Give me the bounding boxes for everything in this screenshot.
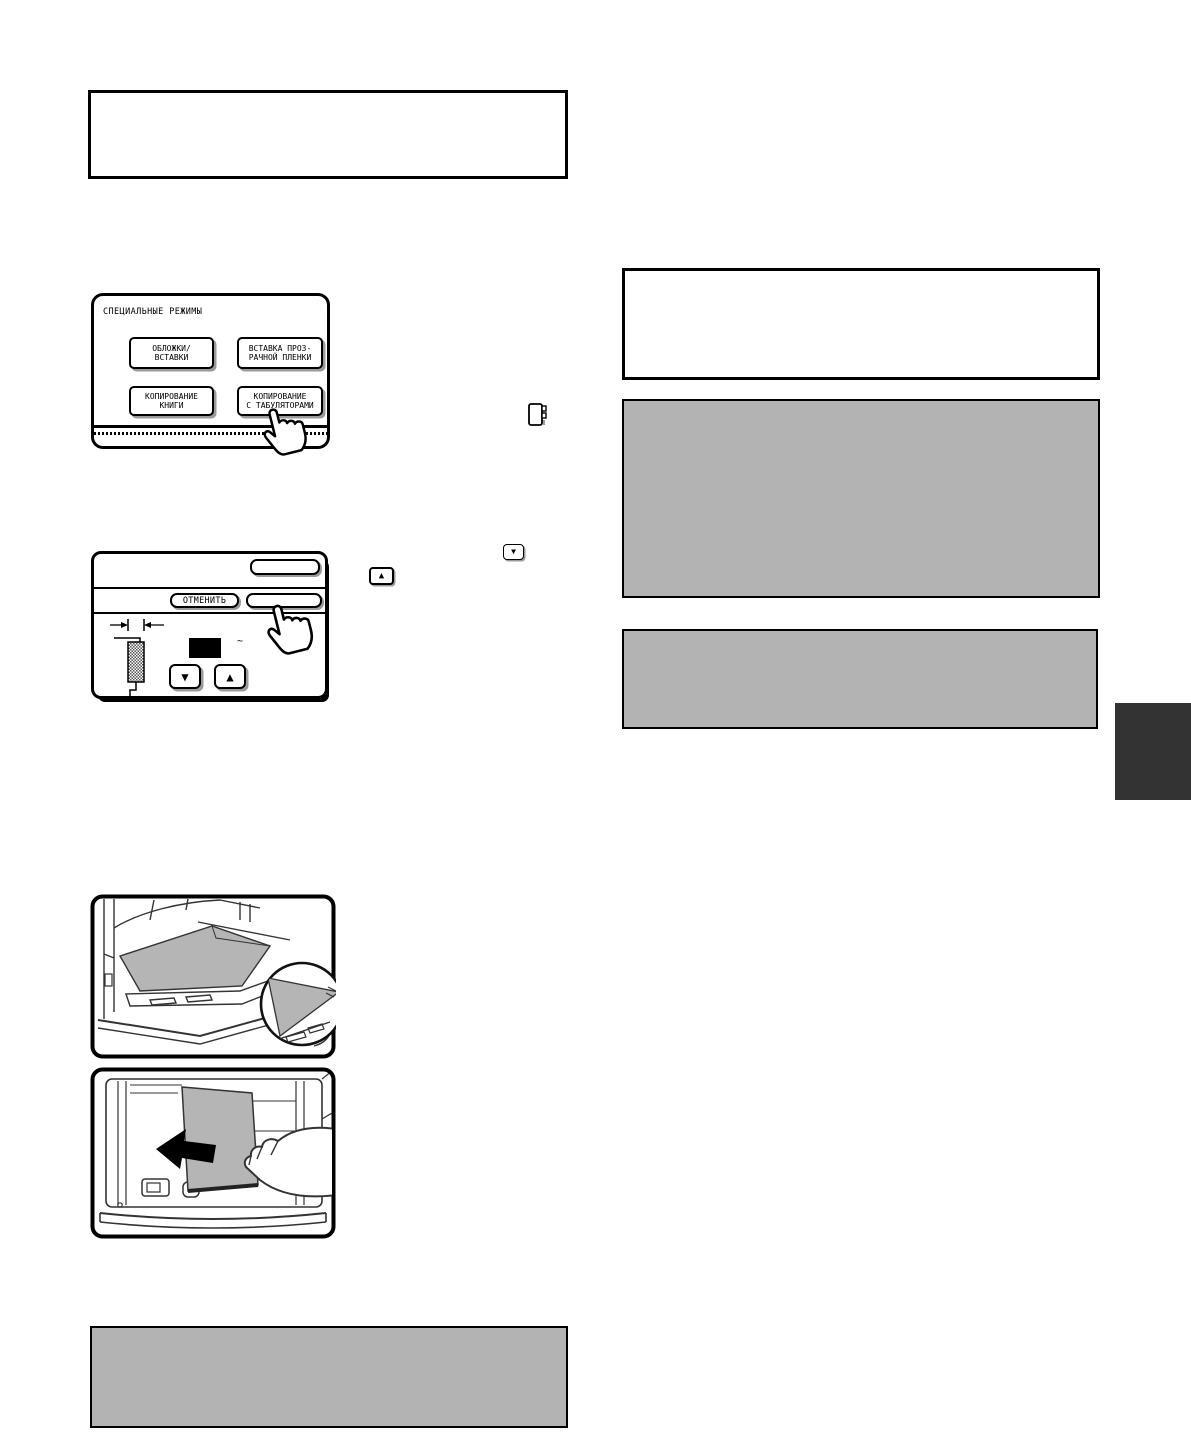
callout-box-top-left	[88, 90, 568, 179]
inline-down-key-icon: ▼	[503, 544, 524, 560]
callout-box-right	[622, 268, 1100, 380]
tab-width-screen: ОТМЕНИТЬ	[91, 551, 328, 699]
tab-sheet-icon	[527, 400, 549, 430]
note-box-1	[622, 399, 1100, 598]
panel-divider-line	[94, 425, 327, 428]
tab-width-diagram	[106, 616, 168, 700]
special-modes-title: СПЕЦИАЛЬНЫЕ РЕЖИМЫ	[103, 307, 202, 317]
note-box-2	[622, 629, 1098, 729]
cancel-button[interactable]: ОТМЕНИТЬ	[170, 593, 239, 608]
tilde-mark: ~	[237, 636, 243, 647]
down-triangle-icon: ▼	[181, 671, 188, 683]
paper-drawer-illustration	[90, 1067, 336, 1239]
special-modes-screen: СПЕЦИАЛЬНЫЕ РЕЖИМЫ ОБЛОЖКИ/ ВСТАВКИ ВСТА…	[91, 293, 330, 449]
note-box-bottom	[90, 1326, 568, 1428]
covers-inserts-button[interactable]: ОБЛОЖКИ/ ВСТАВКИ	[129, 337, 214, 369]
inline-up-key-icon: ▲	[369, 567, 394, 585]
screen-top-button[interactable]	[250, 559, 320, 575]
chapter-edge-tab	[1115, 703, 1191, 800]
bypass-tray-illustration	[90, 894, 336, 1059]
decrease-button[interactable]: ▼	[169, 664, 201, 689]
value-display	[189, 638, 221, 658]
panel-stipple-line	[94, 432, 327, 435]
transparency-insert-button[interactable]: ВСТАВКА ПРОЗ- РАЧНОЙ ПЛЕНКИ	[237, 337, 323, 369]
increase-button[interactable]: ▲	[214, 664, 246, 689]
tab-copy-button[interactable]: КОПИРОВАНИЕ С ТАБУЛЯТОРАМИ	[237, 386, 323, 416]
screen-divider-1	[94, 587, 325, 589]
book-copy-button[interactable]: КОПИРОВАНИЕ КНИГИ	[129, 386, 214, 416]
manual-page: СПЕЦИАЛЬНЫЕ РЕЖИМЫ ОБЛОЖКИ/ ВСТАВКИ ВСТА…	[0, 0, 1191, 1432]
up-triangle-icon: ▲	[226, 671, 233, 683]
screen-divider-2	[94, 612, 325, 614]
ok-button[interactable]	[246, 593, 322, 608]
